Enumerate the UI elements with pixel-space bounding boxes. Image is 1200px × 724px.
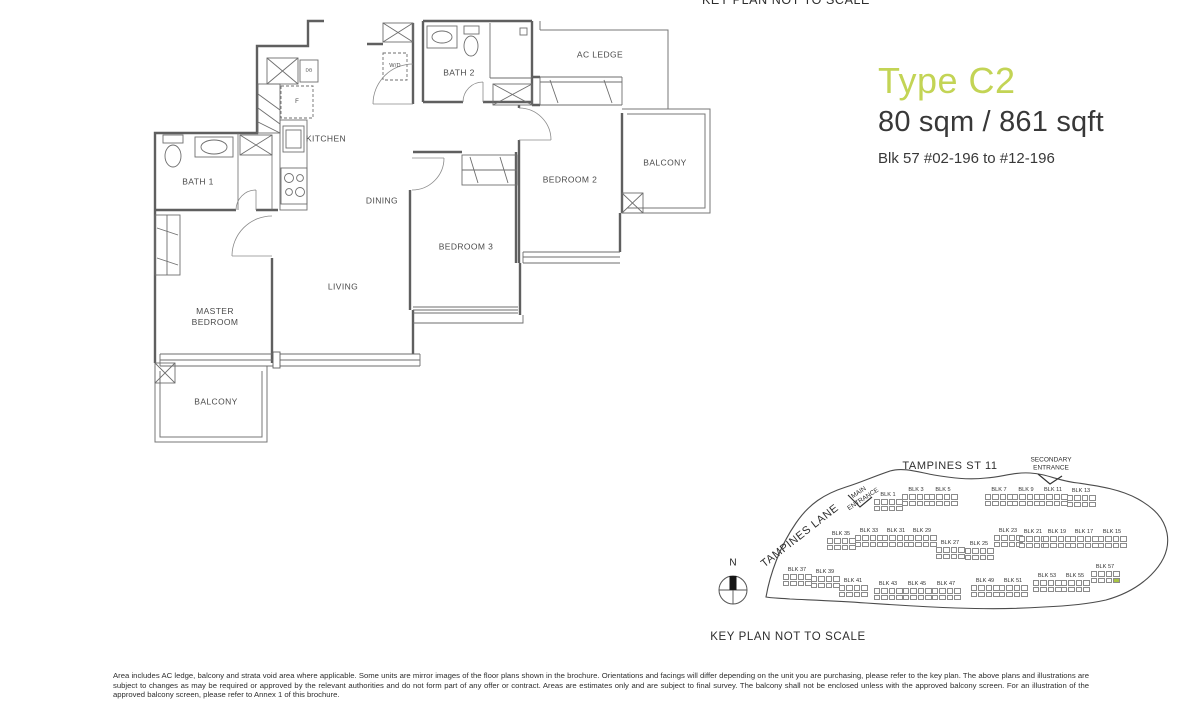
kitchen-counter [280,120,307,210]
room-label-bedroom-3: BEDROOM 3 [439,242,494,253]
room-label-balcony-right: BALCONY [643,158,686,169]
unit-block-range: Blk 57 #02-196 to #12-196 [878,150,1055,167]
keyplan-site-outline [766,470,1168,609]
wardrobes [155,155,517,275]
compass-icon [719,576,747,604]
room-label-living: LIVING [328,282,358,293]
room-label-bath-2: BATH 2 [443,68,475,79]
bath1-fixtures [163,135,233,167]
room-label-kitchen: KITCHEN [306,134,346,145]
keyplan-caption: KEY PLAN NOT TO SCALE [710,631,866,643]
disclaimer-text: Area includes AC ledge, balcony and stra… [113,671,1089,700]
room-label-bath-1: BATH 1 [182,177,214,188]
unit-type-title: Type C2 [878,60,1016,102]
compass-north-label: N [729,558,736,569]
room-label-dining: DINING [366,196,398,207]
label-washer-dryer: W/D [389,63,400,69]
label-db: DB [305,69,312,74]
room-label-ac-ledge: AC LEDGE [577,50,623,61]
room-label-bedroom-2: BEDROOM 2 [543,175,598,186]
top-keyplan-caption: KEY PLAN NOT TO SCALE [702,0,870,7]
secondary-entrance-arrow [1038,474,1062,484]
room-label-master-bedroom: MASTER BEDROOM [192,306,239,328]
label-fridge: F [295,99,299,105]
secondary-entrance-label: SECONDARY ENTRANCE [1030,457,1071,472]
keyplan-map [766,470,1168,609]
ac-ledge-outline [540,21,710,109]
floorplan-brochure-page: KITCHEN DINING LIVING MASTER BEDROOM BED… [0,0,1200,724]
unit-area: 80 sqm / 861 sqft [878,106,1104,139]
street-label-tampines-st-11: TAMPINES ST 11 [902,460,997,472]
room-label-balcony-lower: BALCONY [194,397,237,408]
